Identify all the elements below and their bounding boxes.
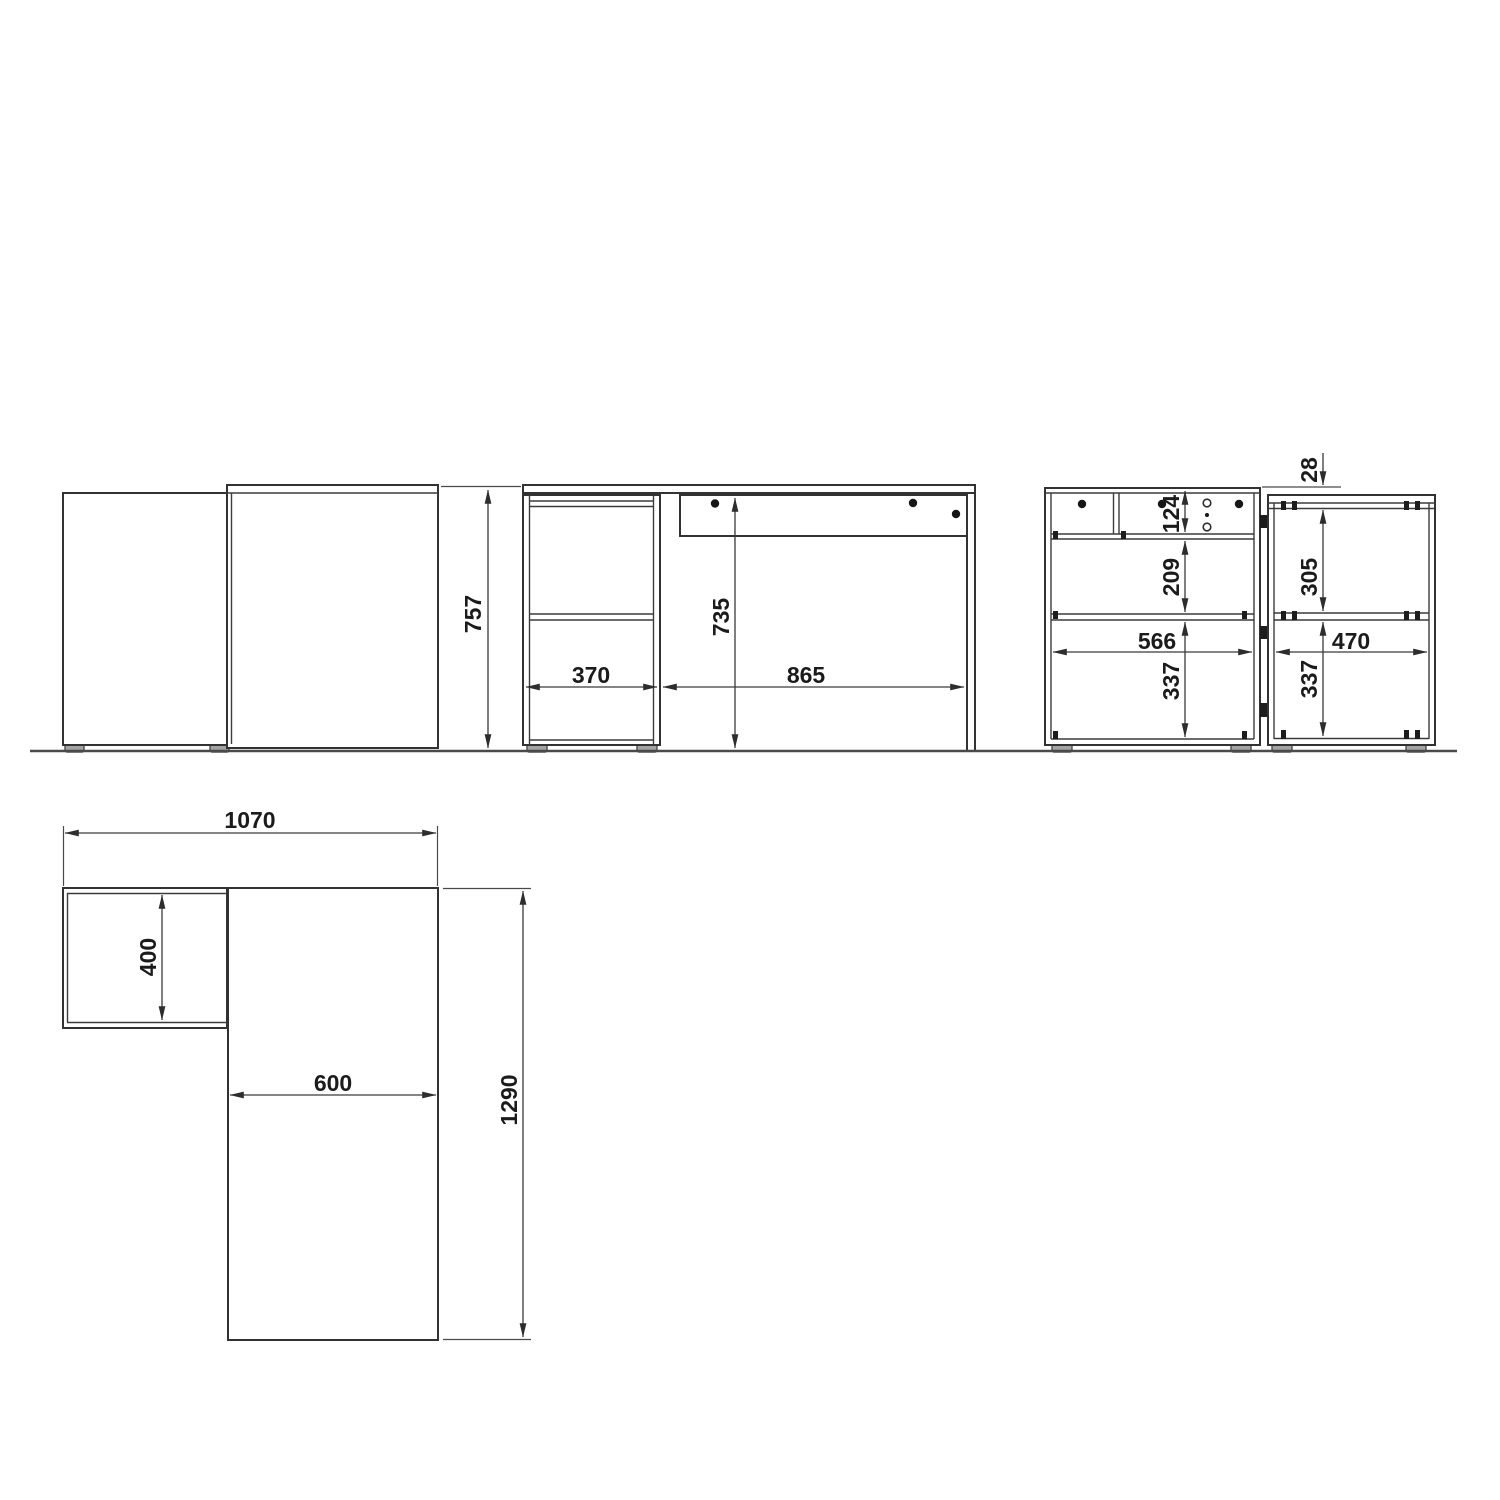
- dimension-label: 1290: [496, 1074, 522, 1125]
- dimension-label: 600: [314, 1070, 352, 1096]
- side-view: [63, 485, 438, 752]
- dimension-label: 337: [1296, 660, 1322, 698]
- furniture-dimension-drawing: 757 735 370 865 124 209 337 566 28 305: [0, 0, 1500, 1500]
- desktop-slab: [523, 485, 975, 493]
- cam-lock-mark: [1404, 501, 1409, 510]
- dimension-label: 865: [787, 662, 826, 688]
- fitting-dot: [952, 510, 960, 518]
- dimension-label: 470: [1332, 628, 1370, 654]
- dimension-plan-overall-width: 1070: [64, 807, 438, 886]
- dimension-label: 305: [1296, 558, 1322, 597]
- dimension-label: 337: [1158, 662, 1184, 700]
- cam-lock-mark: [1281, 611, 1286, 620]
- fitting-dot: [1078, 500, 1086, 508]
- dimension-kneehole-width: 865: [663, 662, 964, 688]
- front-view: [523, 485, 975, 752]
- dimension-label: 209: [1158, 558, 1184, 596]
- back-apron: [680, 495, 967, 536]
- dimension-side-height: 757: [441, 487, 521, 749]
- dimension-drawer-height: 124: [1158, 491, 1185, 533]
- connector-mark: [1260, 515, 1267, 528]
- dimension-label: 735: [708, 598, 734, 637]
- cam-lock-mark: [1281, 730, 1286, 739]
- desk-side-panel: [967, 493, 975, 751]
- fitting-dot: [1205, 513, 1209, 517]
- cam-lock-mark: [1242, 611, 1247, 619]
- fitting-hole: [1203, 523, 1211, 531]
- fitting-dot: [1235, 500, 1243, 508]
- desk-top-outline: [228, 888, 438, 1340]
- dimension-plan-overall-length: 1290: [443, 889, 531, 1340]
- plan-view: [63, 888, 438, 1340]
- cam-lock-mark: [1281, 501, 1286, 510]
- fitting-dot: [711, 499, 719, 507]
- cam-lock-mark: [1121, 531, 1126, 539]
- side-desk-outline: [227, 485, 438, 748]
- fitting-hole: [1203, 499, 1211, 507]
- dimension-label: 400: [135, 938, 161, 976]
- side-cabinet-outline: [63, 493, 232, 745]
- dimension-label: 757: [460, 595, 486, 633]
- dimension-label: 370: [572, 662, 610, 688]
- connector-mark: [1260, 626, 1267, 639]
- cam-lock-mark: [1404, 730, 1409, 739]
- dimension-label: 566: [1138, 628, 1176, 654]
- fitting-dot: [909, 499, 917, 507]
- cam-lock-mark: [1292, 611, 1297, 620]
- cam-lock-mark: [1415, 611, 1420, 620]
- dimension-label: 124: [1158, 495, 1184, 534]
- cam-lock-mark: [1053, 611, 1058, 619]
- cam-lock-mark: [1242, 731, 1247, 739]
- connector-mark: [1260, 703, 1267, 717]
- cam-lock-mark: [1053, 731, 1058, 739]
- cam-lock-mark: [1415, 730, 1420, 739]
- cam-lock-mark: [1404, 611, 1409, 620]
- dimension-label: 1070: [224, 807, 275, 833]
- cam-lock-mark: [1292, 501, 1297, 510]
- dimension-top-panel-offset: 28: [1262, 453, 1341, 487]
- dimension-label: 28: [1296, 457, 1322, 483]
- left-cabinet-outline: [1045, 488, 1260, 745]
- cam-lock-mark: [1053, 531, 1058, 539]
- cam-lock-mark: [1415, 501, 1420, 510]
- technical-drawing-canvas: 757 735 370 865 124 209 337 566 28 305: [0, 0, 1500, 1500]
- back-view: [1045, 488, 1435, 752]
